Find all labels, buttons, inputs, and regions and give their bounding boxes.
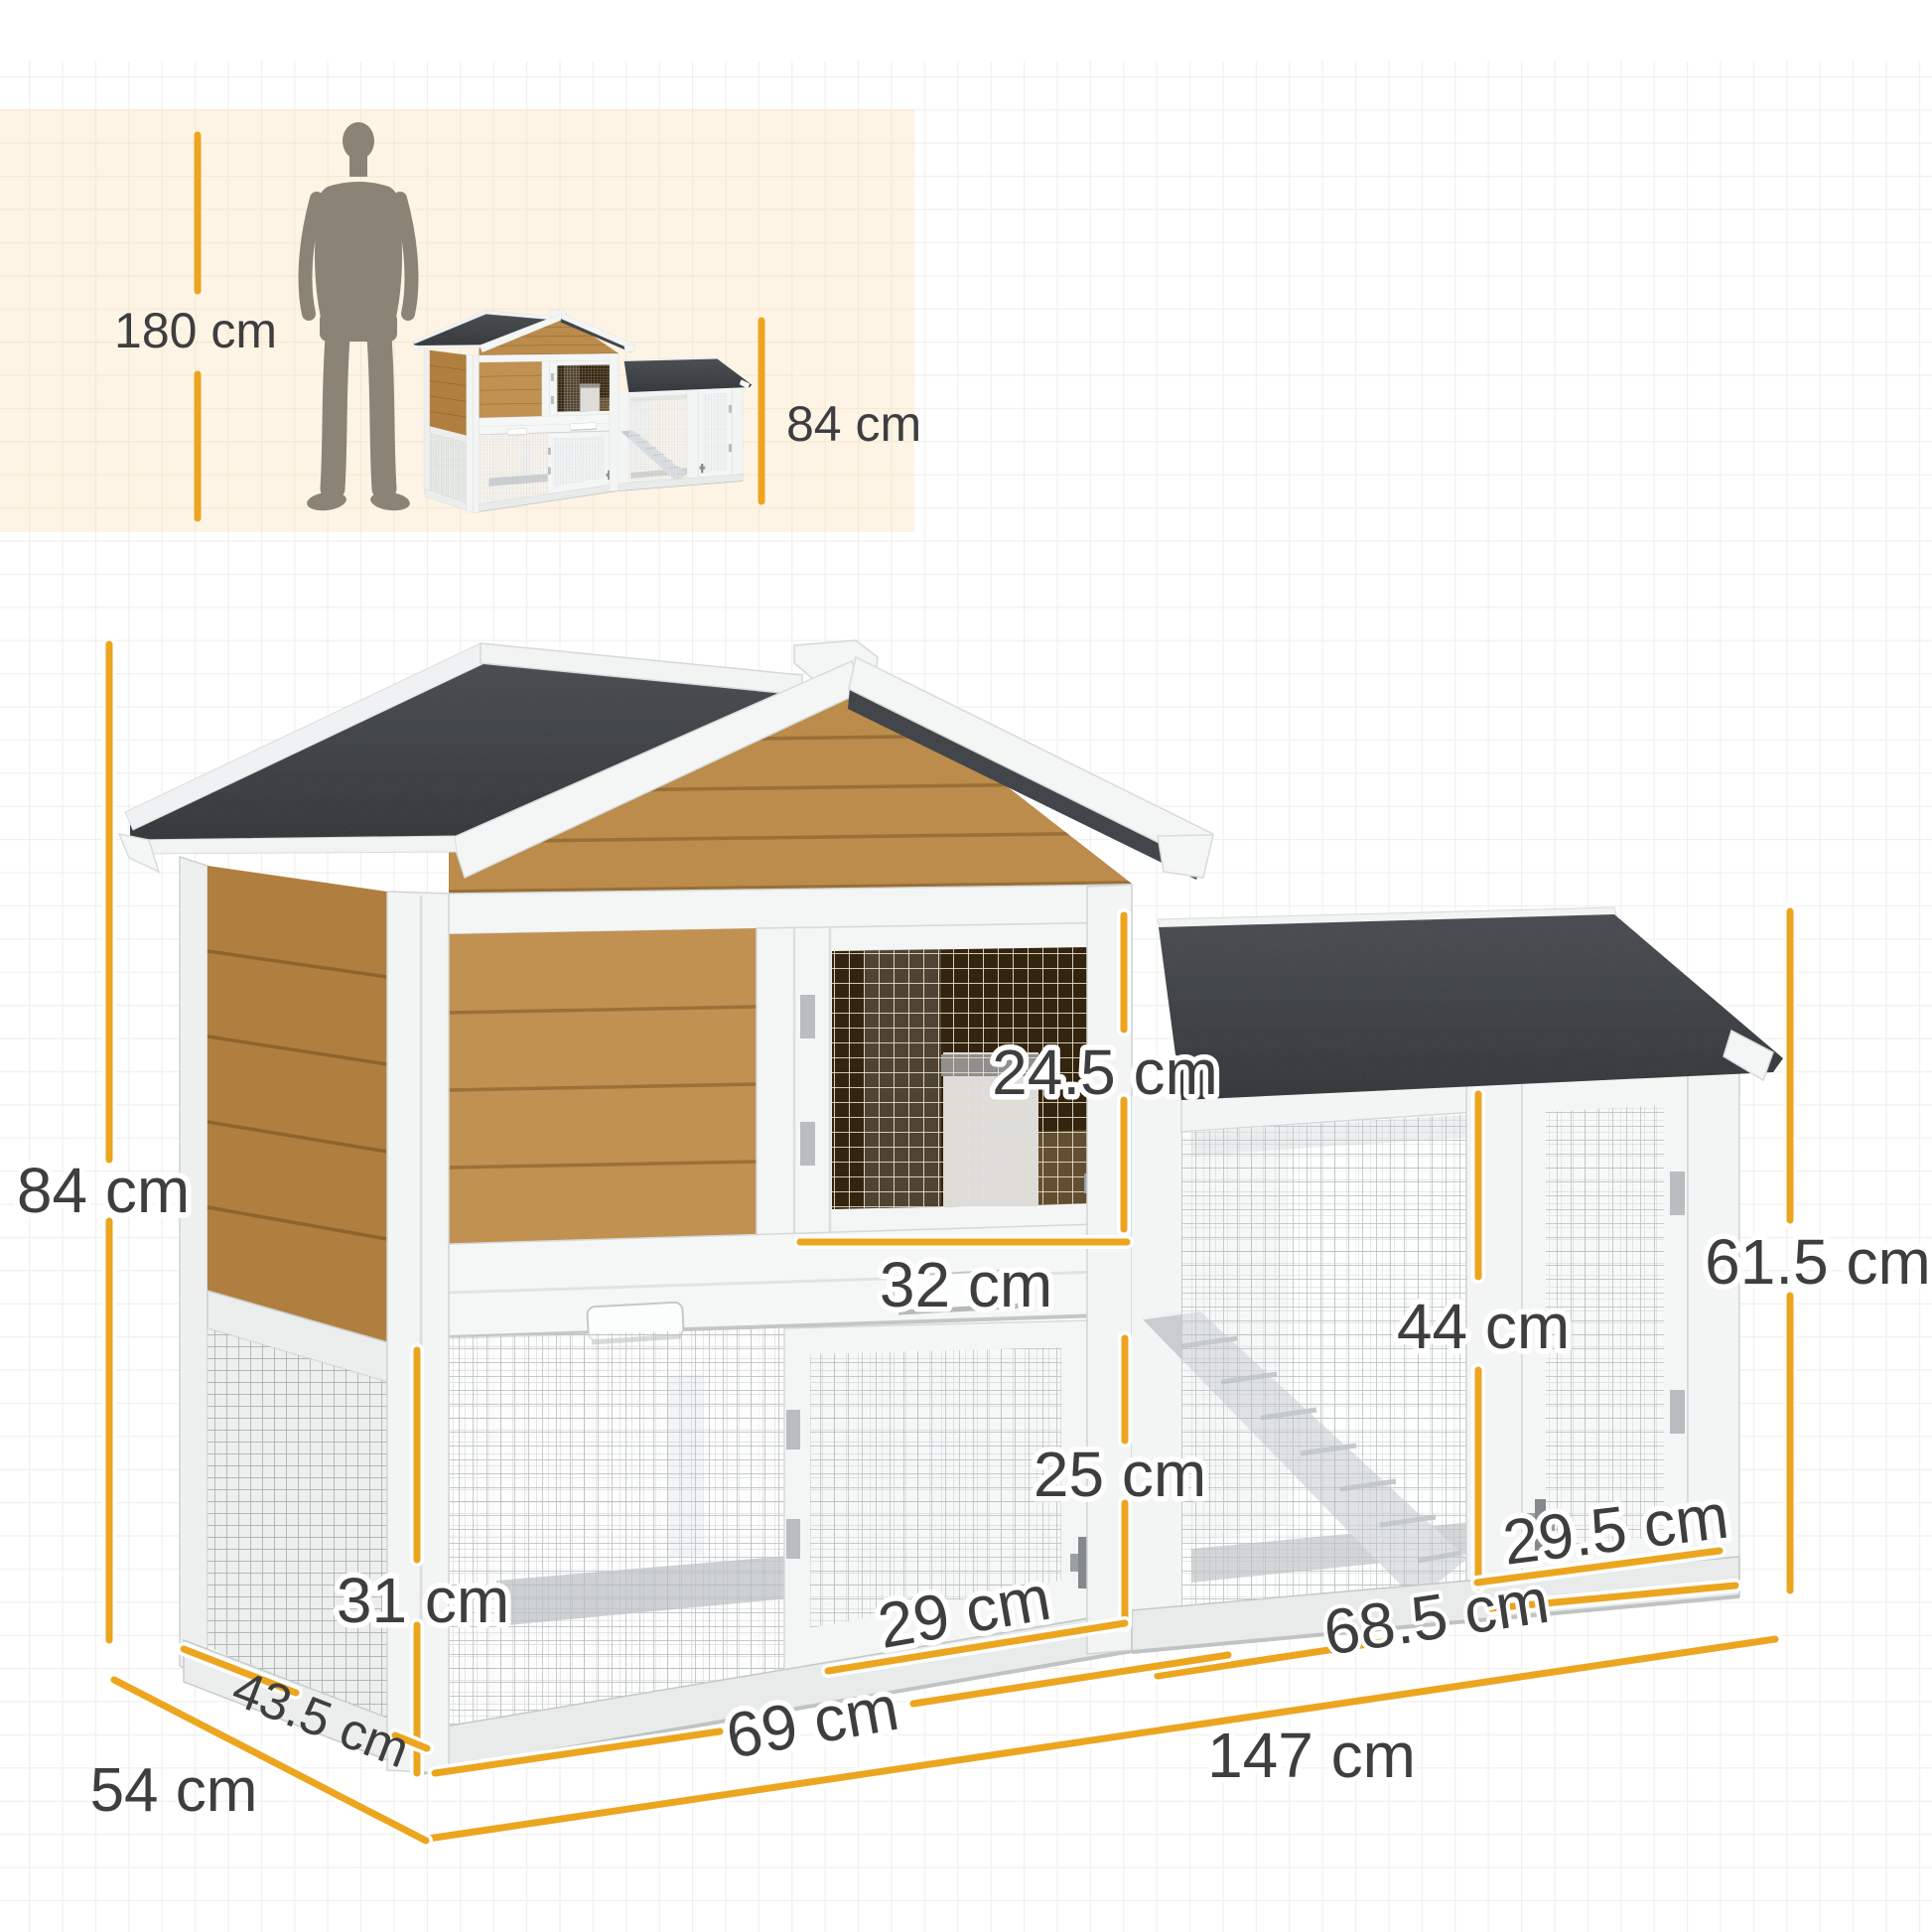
svg-text:25 cm: 25 cm	[1034, 1439, 1206, 1510]
svg-text:24.5 cm: 24.5 cm	[992, 1036, 1218, 1108]
svg-text:61.5 cm: 61.5 cm	[1705, 1226, 1931, 1298]
svg-text:84 cm: 84 cm	[17, 1155, 190, 1226]
svg-text:54 cm: 54 cm	[90, 1756, 258, 1825]
svg-text:180 cm: 180 cm	[114, 303, 277, 358]
svg-text:84 cm: 84 cm	[786, 396, 921, 452]
svg-text:147 cm: 147 cm	[1207, 1720, 1416, 1791]
svg-text:31 cm: 31 cm	[337, 1565, 509, 1636]
svg-text:32 cm: 32 cm	[880, 1249, 1052, 1320]
svg-text:44 cm: 44 cm	[1397, 1291, 1570, 1362]
